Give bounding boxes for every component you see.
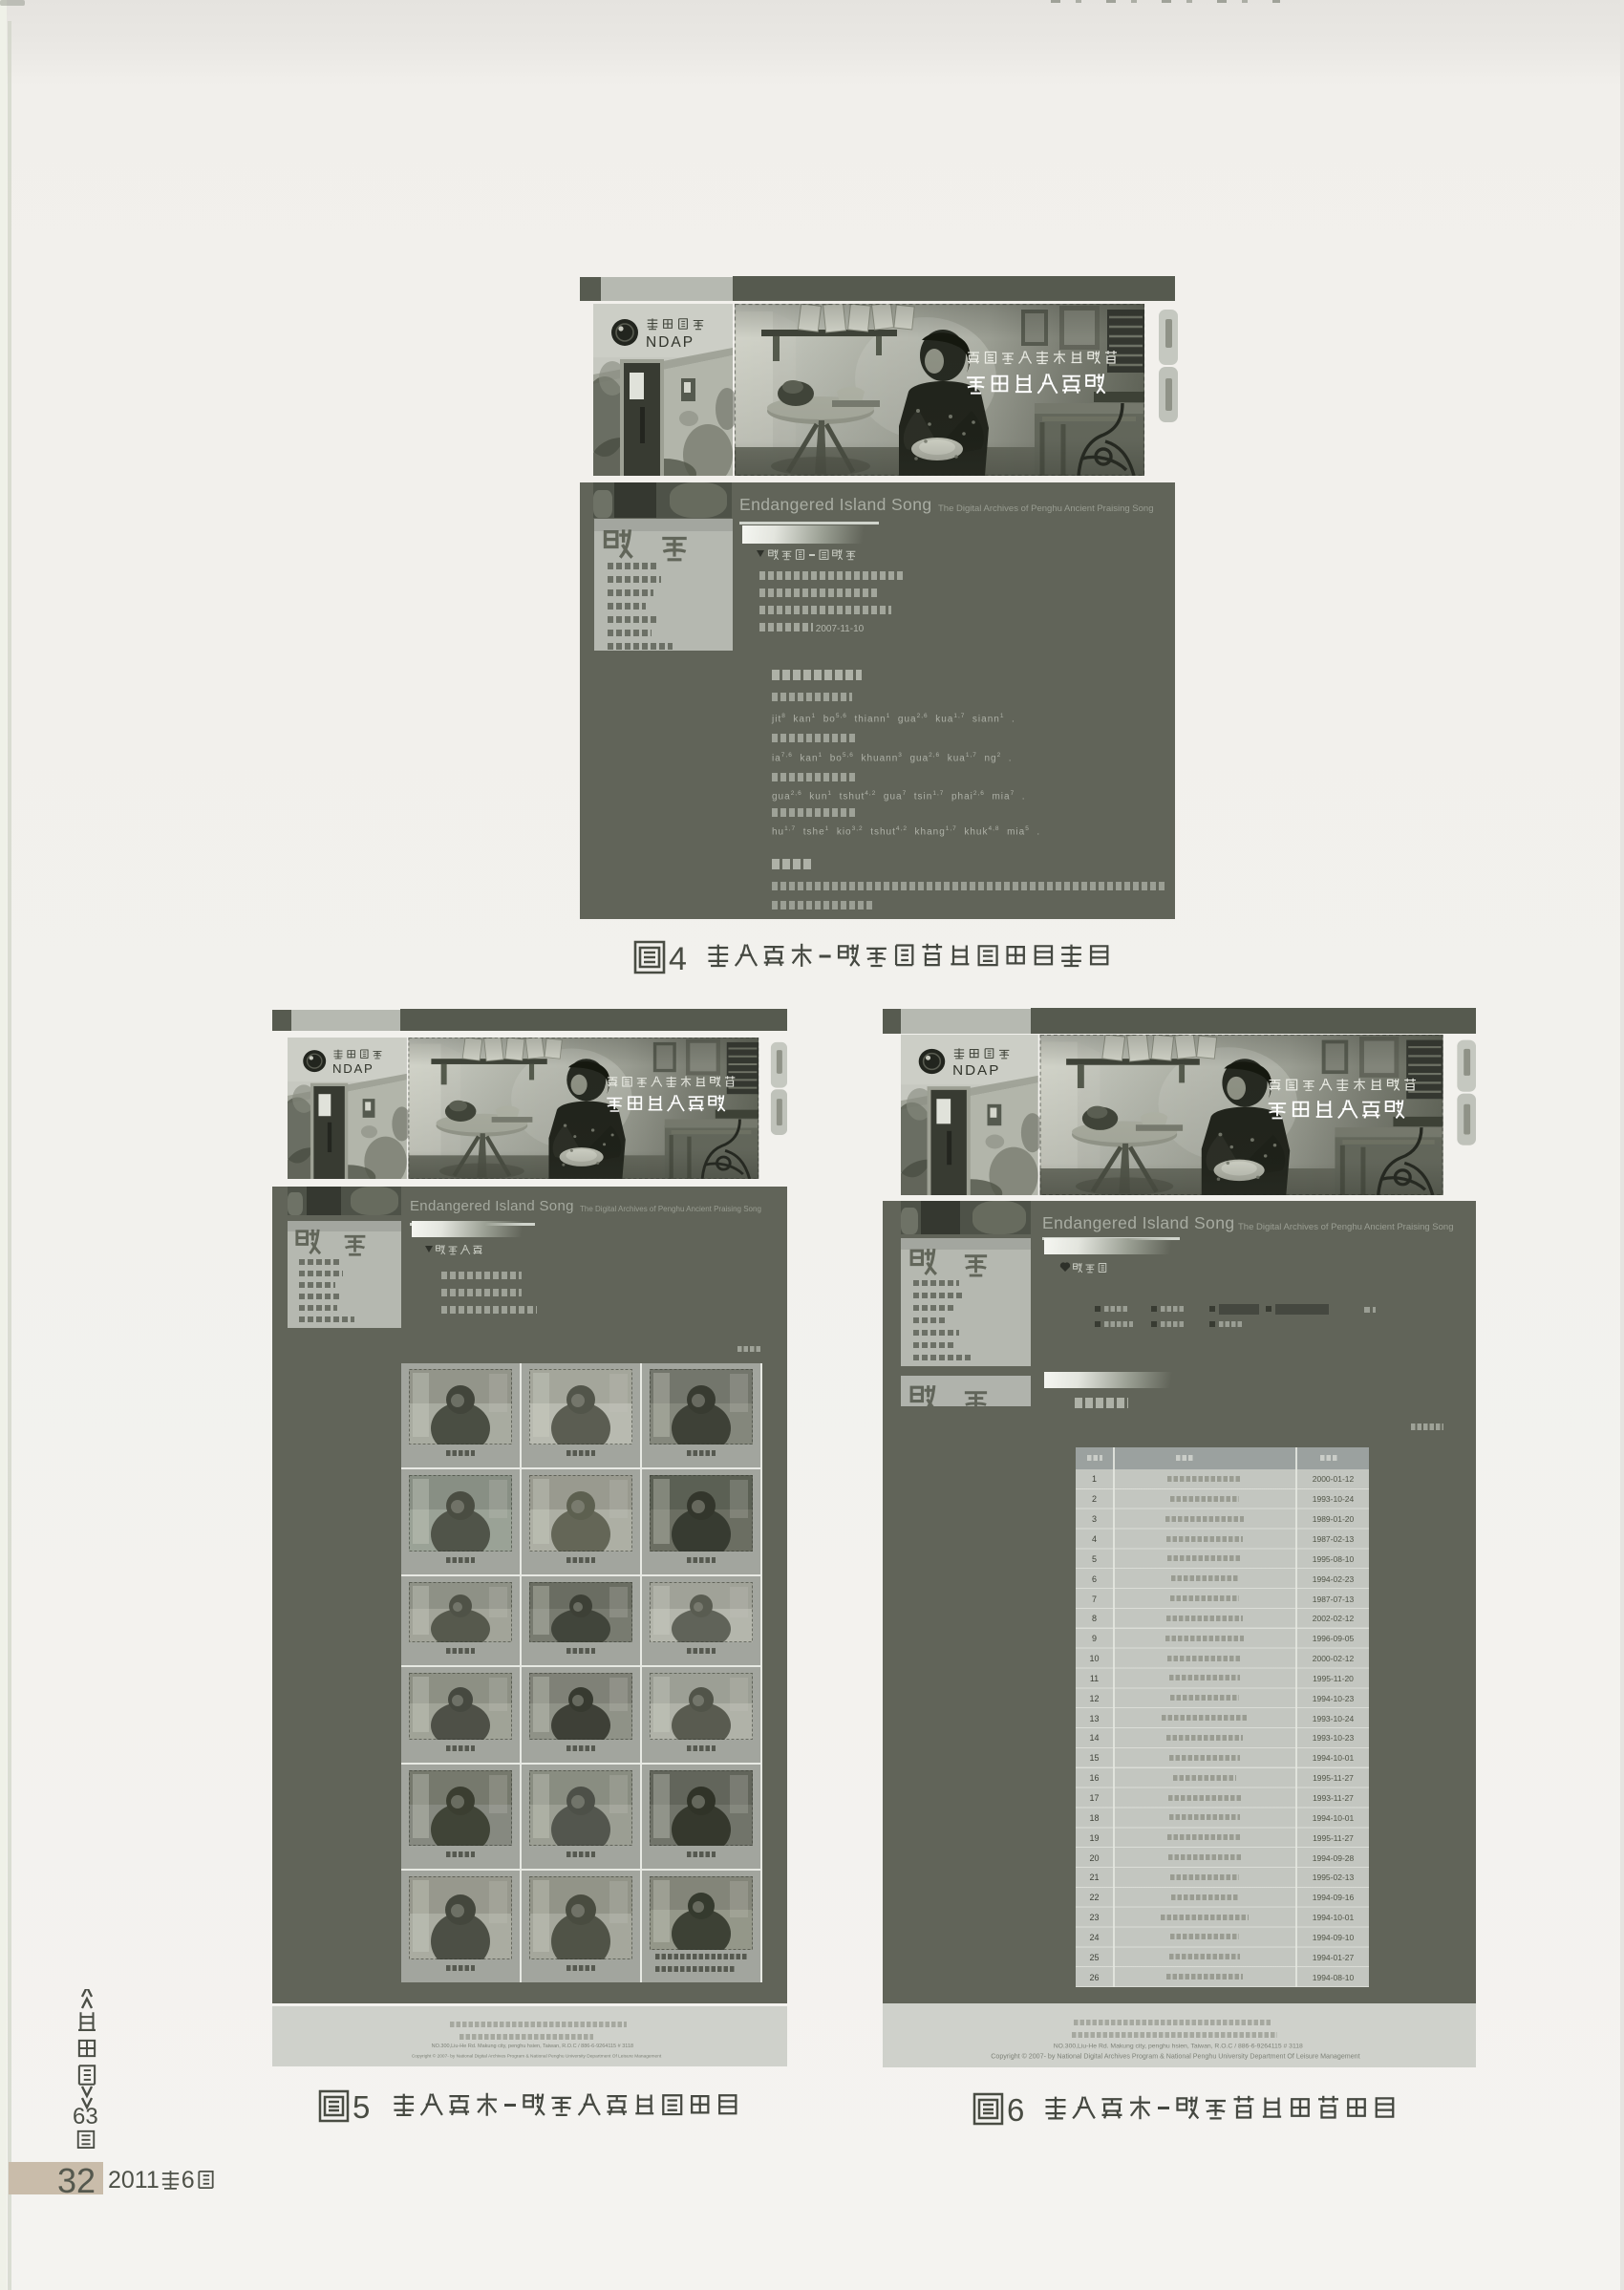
svg-text:6: 6: [1007, 2092, 1024, 2127]
svg-text:63: 63: [73, 2104, 98, 2129]
svg-text:5: 5: [353, 2089, 370, 2124]
svg-text:4: 4: [669, 941, 687, 975]
